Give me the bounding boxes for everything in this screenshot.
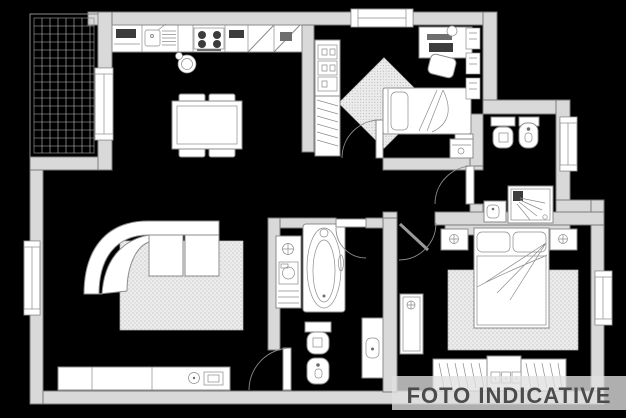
bedroom2-window [351,9,413,27]
hallway-cabinet [450,139,473,158]
pillow [391,92,408,130]
wall-shelves [466,28,480,99]
watermark: FOTO INDICATIVE [392,376,626,410]
corner-cabinet-item [280,32,292,41]
watermark-text: FOTO INDICATIVE [407,383,612,408]
bedroom1-dresser [400,294,423,354]
nightstand-left [441,229,468,250]
bathtub [303,224,345,312]
kitchen-cabinet-front-2 [229,30,244,38]
bedroom1-window [595,271,612,325]
balcony-railing [30,14,98,157]
bathroom2-door [435,166,474,204]
shower [508,186,553,223]
kitchen-cabinet-front [116,29,136,38]
wall-top-right-vertical [483,12,497,107]
kettle-icon [176,53,197,74]
floor-plan-image: FOTO INDICATIVE [0,0,626,418]
balcony-railing-inner [34,18,94,153]
bathroom-2 [484,117,553,223]
bathroom2-bidet [519,117,539,148]
kitchen-area [112,24,302,73]
bedroom-1 [400,228,578,391]
dining-table [172,94,242,157]
single-bed [383,88,471,134]
bedroom1-door [399,223,436,260]
double-bed [474,228,549,328]
living-room-window [24,241,40,315]
bathtub-faucet-icon [320,229,328,237]
bedroom2-wardrobe [315,40,340,156]
shower-head-icon [513,191,523,201]
wall-bath1-top-right [366,218,383,228]
bedroom-2 [315,26,480,156]
sideboard [58,367,230,390]
cooktop [194,28,224,51]
laundry-column [276,236,301,308]
wall-kitchen-hall [302,25,314,152]
balcony-tile-grid [34,18,94,153]
speaker-icon [204,372,223,385]
bathroom-1 [276,224,383,384]
bathroom1-washbasin [362,318,383,378]
living-bath-door [249,348,291,390]
desk-lamp-icon [447,26,457,36]
bathroom1-toilet [305,322,331,354]
balcony-door [95,68,113,140]
pillow [477,232,510,252]
pillow [513,232,546,252]
table-top [172,101,242,149]
living-area [58,221,243,390]
bathroom2-washbasin [484,201,506,222]
balcony [30,14,98,157]
nightstand-right [550,229,577,250]
bathroom2-toilet [491,117,515,148]
keyboard-icon [429,43,453,52]
wall-bath1-right [383,218,397,392]
desk [419,26,472,79]
wall-top [88,12,497,25]
bathroom2-window [560,117,577,171]
washing-machine-icon [279,262,298,284]
monitor-icon [427,34,452,40]
bathroom1-bidet [307,358,329,384]
